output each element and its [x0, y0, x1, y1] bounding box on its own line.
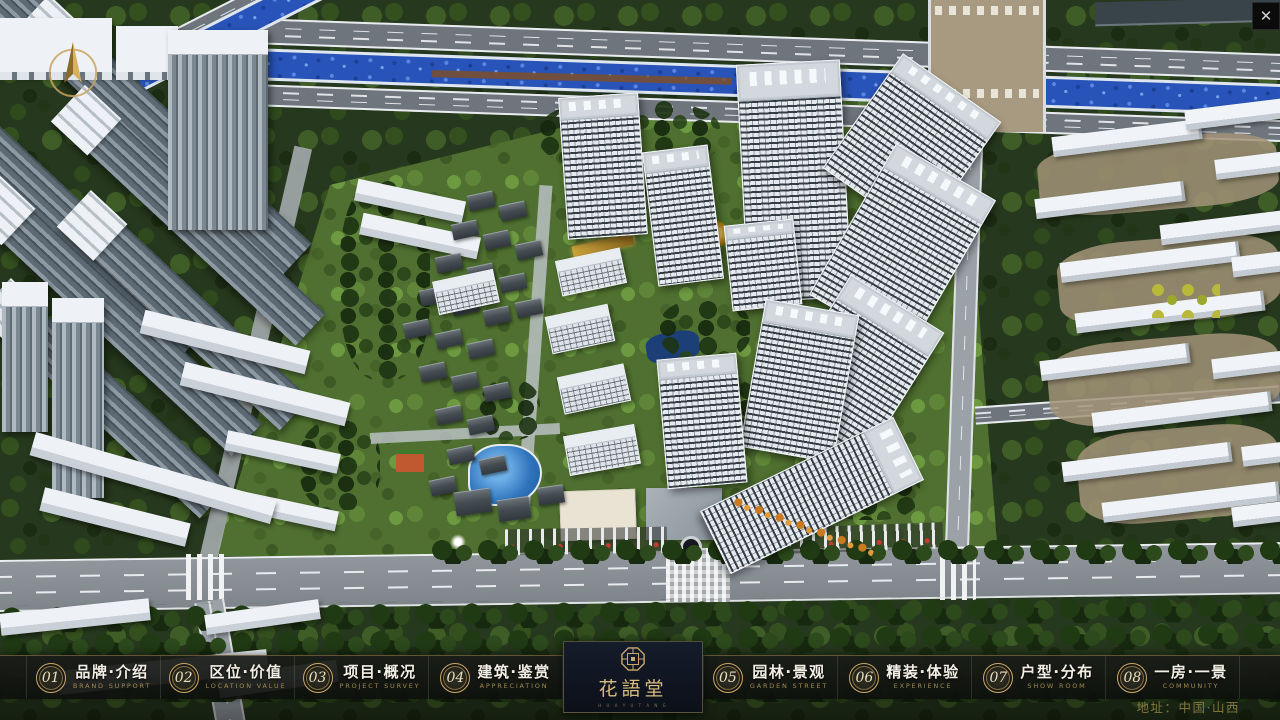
nav-sublabel: SHOW ROOM	[1027, 683, 1086, 690]
villa-building	[483, 305, 512, 326]
villa-building	[435, 328, 464, 349]
midrise-building	[545, 304, 616, 354]
brand-title: 花語堂	[598, 674, 667, 701]
brand-subtitle: H U A Y U T A N G	[598, 703, 668, 708]
nav-number-badge: 02	[169, 663, 199, 693]
address-text: 地址：中国·山西	[1137, 697, 1240, 716]
nav-number-badge: 05	[713, 663, 743, 693]
villa-building	[515, 239, 544, 260]
villa-building	[435, 252, 464, 273]
villa-building	[451, 371, 480, 392]
nav-label: 建筑·鉴赏	[477, 665, 550, 681]
aerial-masterplan-render	[0, 0, 1280, 720]
villa-building	[467, 190, 496, 211]
nav-sublabel: COMMUNITY	[1163, 683, 1220, 690]
nav-label: 品牌·介绍	[75, 665, 148, 681]
tower-building	[724, 219, 803, 312]
bottom-navbar: 01 品牌·介绍 BRAND SUPPORT 02 区位·价值 LOCATION…	[0, 655, 1280, 699]
nav-item-views[interactable]: 08 一房·一景 COMMUNITY	[1105, 656, 1240, 699]
nav-sublabel: EXPERIENCE	[894, 683, 953, 690]
tower-building	[656, 353, 747, 489]
villa-building	[467, 338, 496, 359]
white-slab-building	[0, 598, 151, 636]
nav-sublabel: APPRECIATION	[480, 683, 549, 690]
villa-building	[515, 297, 544, 318]
white-slab-building	[39, 487, 190, 547]
white-slab-building	[204, 599, 321, 635]
nav-label: 园林·景观	[752, 665, 825, 681]
nav-sublabel: GARDEN STREET	[750, 683, 828, 690]
nav-item-project[interactable]: 03 项目·概况 PROJECT SURVEY	[294, 656, 428, 699]
villa-building	[483, 229, 512, 250]
nav-item-location[interactable]: 02 区位·价值 LOCATION VALUE	[160, 656, 294, 699]
nav-number-badge: 06	[849, 663, 879, 693]
midrise-building	[563, 424, 641, 476]
brand-logo-panel[interactable]: 花語堂 H U A Y U T A N G	[563, 641, 703, 713]
nav-item-interior[interactable]: 06 精装·体验 EXPERIENCE	[837, 656, 971, 699]
villa-building	[499, 272, 528, 293]
villa-building	[537, 484, 565, 505]
villa-building	[499, 200, 528, 221]
yellow-trees	[1150, 282, 1220, 318]
seal-icon	[620, 646, 646, 672]
nav-number-badge: 03	[303, 663, 333, 693]
nav-sublabel: LOCATION VALUE	[206, 683, 287, 690]
compass-icon	[44, 36, 102, 102]
tower-building	[642, 144, 724, 286]
midrise-building	[555, 248, 627, 297]
villa-building	[479, 454, 508, 475]
tower-building	[558, 92, 648, 239]
nav-label: 项目·概况	[343, 665, 416, 681]
nav-sublabel: PROJECT SURVEY	[340, 683, 421, 690]
villa-building	[454, 488, 493, 517]
nav-label: 区位·价值	[209, 665, 282, 681]
nav-number-badge: 01	[36, 663, 66, 693]
villa-building	[435, 404, 464, 425]
nav-item-architecture[interactable]: 04 建筑·鉴赏 APPRECIATION	[428, 656, 563, 699]
nav-item-brand[interactable]: 01 品牌·介绍 BRAND SUPPORT	[26, 656, 160, 699]
city-tower-building	[168, 30, 268, 230]
nav-number-badge: 07	[983, 663, 1013, 693]
nav-label: 户型·分布	[1020, 665, 1093, 681]
nav-number-badge: 08	[1117, 663, 1147, 693]
nav-item-floorplan[interactable]: 07 户型·分布 SHOW ROOM	[971, 656, 1105, 699]
villa-building	[419, 361, 448, 382]
row-building	[1184, 96, 1280, 130]
nav-label: 精装·体验	[886, 665, 959, 681]
nav-item-garden[interactable]: 05 园林·景观 GARDEN STREET	[703, 656, 837, 699]
villa-building	[447, 444, 476, 465]
nav-label: 一房·一景	[1154, 665, 1227, 681]
nav-number-badge: 04	[440, 663, 470, 693]
midrise-building	[432, 269, 500, 315]
nav-sublabel: BRAND SUPPORT	[73, 683, 151, 690]
sales-presentation-screen: ✕ 01 品牌·介绍 BRAND SUPPORT 02 区位·价值 LOCATI…	[0, 0, 1280, 720]
villa-building	[497, 496, 532, 522]
nav-group-left: 01 品牌·介绍 BRAND SUPPORT 02 区位·价值 LOCATION…	[0, 656, 563, 699]
close-button[interactable]: ✕	[1252, 2, 1280, 30]
midrise-building	[557, 363, 631, 414]
nav-group-right: 05 园林·景观 GARDEN STREET 06 精装·体验 EXPERIEN…	[703, 656, 1280, 699]
city-tower-building	[2, 282, 48, 432]
